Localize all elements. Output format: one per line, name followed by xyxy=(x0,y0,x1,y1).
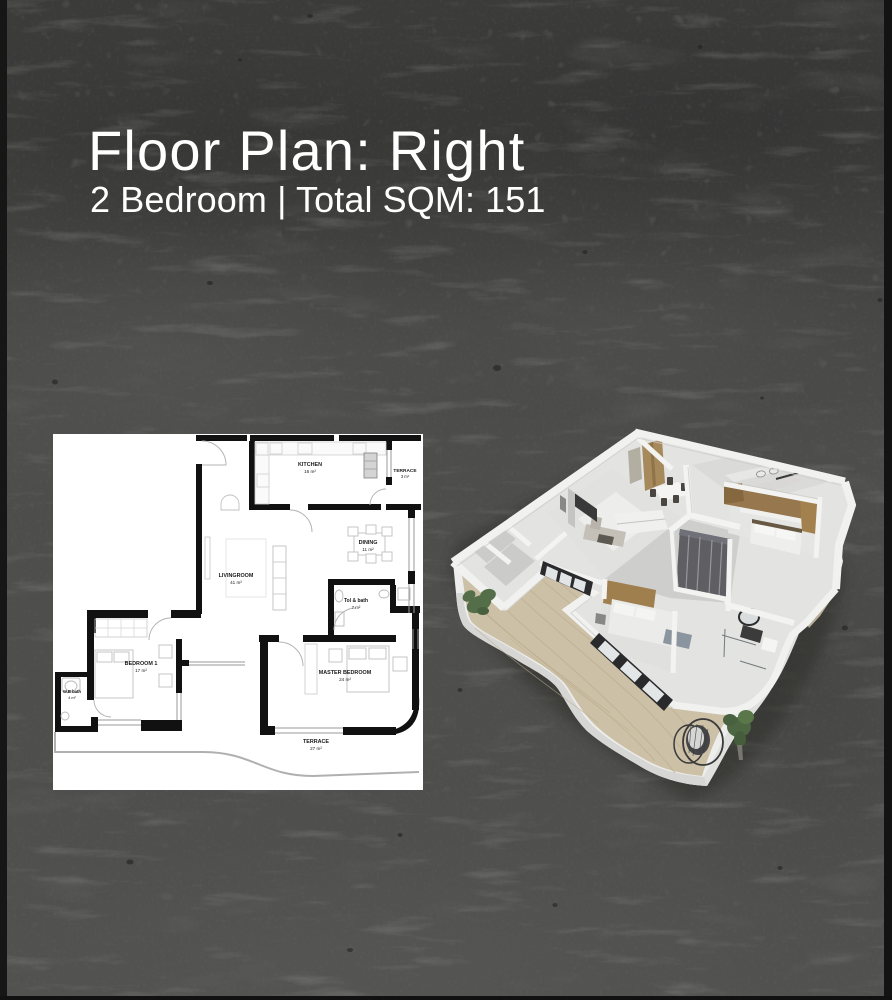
svg-text:3 m²: 3 m² xyxy=(401,474,410,479)
svg-text:11 m²: 11 m² xyxy=(362,547,374,552)
svg-text:4 m²: 4 m² xyxy=(68,696,76,700)
svg-text:17 m²: 17 m² xyxy=(135,668,147,673)
svg-text:BEDROOM 1: BEDROOM 1 xyxy=(125,661,158,667)
svg-text:24 m²: 24 m² xyxy=(339,677,351,682)
svg-text:41 m²: 41 m² xyxy=(230,580,242,585)
svg-text:16 m²: 16 m² xyxy=(304,469,316,474)
svg-text:W.B bath: W.B bath xyxy=(63,689,81,694)
svg-text:MASTER BEDROOM: MASTER BEDROOM xyxy=(319,670,372,676)
svg-text:TERRACE: TERRACE xyxy=(303,739,329,745)
svg-text:LIVINGROOM: LIVINGROOM xyxy=(219,573,254,579)
svg-text:7 m²: 7 m² xyxy=(352,605,361,610)
svg-text:27 m²: 27 m² xyxy=(310,746,322,751)
svg-text:KITCHEN: KITCHEN xyxy=(298,462,322,468)
svg-text:DINING: DINING xyxy=(359,540,378,546)
svg-text:Tol & bath: Tol & bath xyxy=(344,598,368,604)
